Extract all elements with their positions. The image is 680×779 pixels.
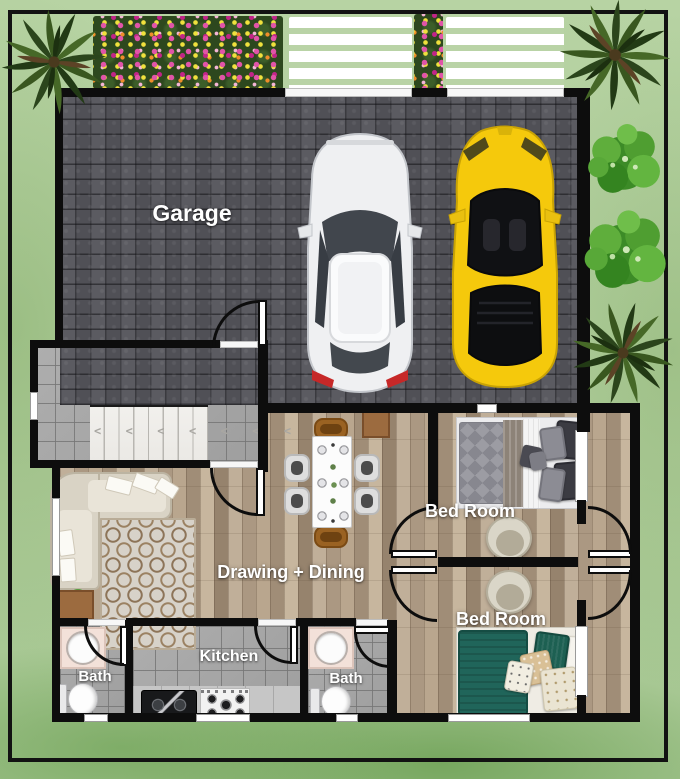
wall <box>300 620 308 720</box>
wall <box>428 413 438 509</box>
yellow-sports-car <box>441 121 569 393</box>
bath-left-window <box>84 714 108 722</box>
wall <box>30 340 220 348</box>
bedroom-top-label: Bed Room <box>425 501 511 522</box>
bedroom-bottom-window <box>448 714 530 722</box>
wall <box>630 408 640 722</box>
bath-center-window <box>336 714 358 722</box>
bath-left-door-opening <box>88 619 126 626</box>
bedroom-bottom-label: Bed Room <box>456 609 544 630</box>
driveway-slats-right <box>446 17 564 89</box>
kitchen-window <box>196 714 250 722</box>
palm-tree-right <box>568 298 678 408</box>
kitchen-label: Kitchen <box>195 648 263 666</box>
bedroom-bottom-armchair <box>486 570 532 614</box>
wall <box>577 600 586 626</box>
kitchen-door-opening <box>258 619 296 626</box>
stairs-window <box>30 392 38 420</box>
drawing-dining-label: Drawing + Dining <box>211 562 371 583</box>
bath-left-label: Bath <box>74 668 116 685</box>
bedroom-bottom-wardrobe <box>575 626 588 697</box>
wall <box>412 88 447 97</box>
dining-table <box>312 436 352 528</box>
bath-center-sink <box>314 631 348 665</box>
flower-bed <box>93 16 283 90</box>
wall <box>577 695 586 719</box>
stairs-door-opening <box>210 461 258 468</box>
wall <box>126 618 258 626</box>
wall <box>258 340 268 472</box>
bath-center-label: Bath <box>324 670 368 687</box>
flower-strip <box>414 14 443 96</box>
garage-label: Garage <box>132 200 252 227</box>
wall <box>577 500 586 524</box>
bedroom-top-armchair <box>486 516 532 560</box>
wall <box>55 88 63 344</box>
floor-plan: < < < < < < < < < < < < < < <box>0 0 680 779</box>
palm-tree-top-left <box>0 6 110 118</box>
driveway-slats-left <box>289 17 412 89</box>
bath-center-door-opening <box>356 619 388 626</box>
garage-door-opening-right <box>447 88 564 97</box>
wall <box>438 557 578 567</box>
palm-tree-top-right <box>556 0 674 114</box>
garage-house-opening <box>477 404 497 413</box>
staircase-direction-marks-down: < < < < < < < <box>94 424 300 438</box>
shrub-right-top <box>586 122 660 200</box>
wall <box>52 618 88 626</box>
bedroom-top-wardrobe <box>575 430 588 502</box>
white-car <box>286 126 434 400</box>
living-room-window <box>52 498 60 576</box>
shrub-right-bottom <box>582 208 666 296</box>
garage-door-opening-left <box>285 88 412 97</box>
